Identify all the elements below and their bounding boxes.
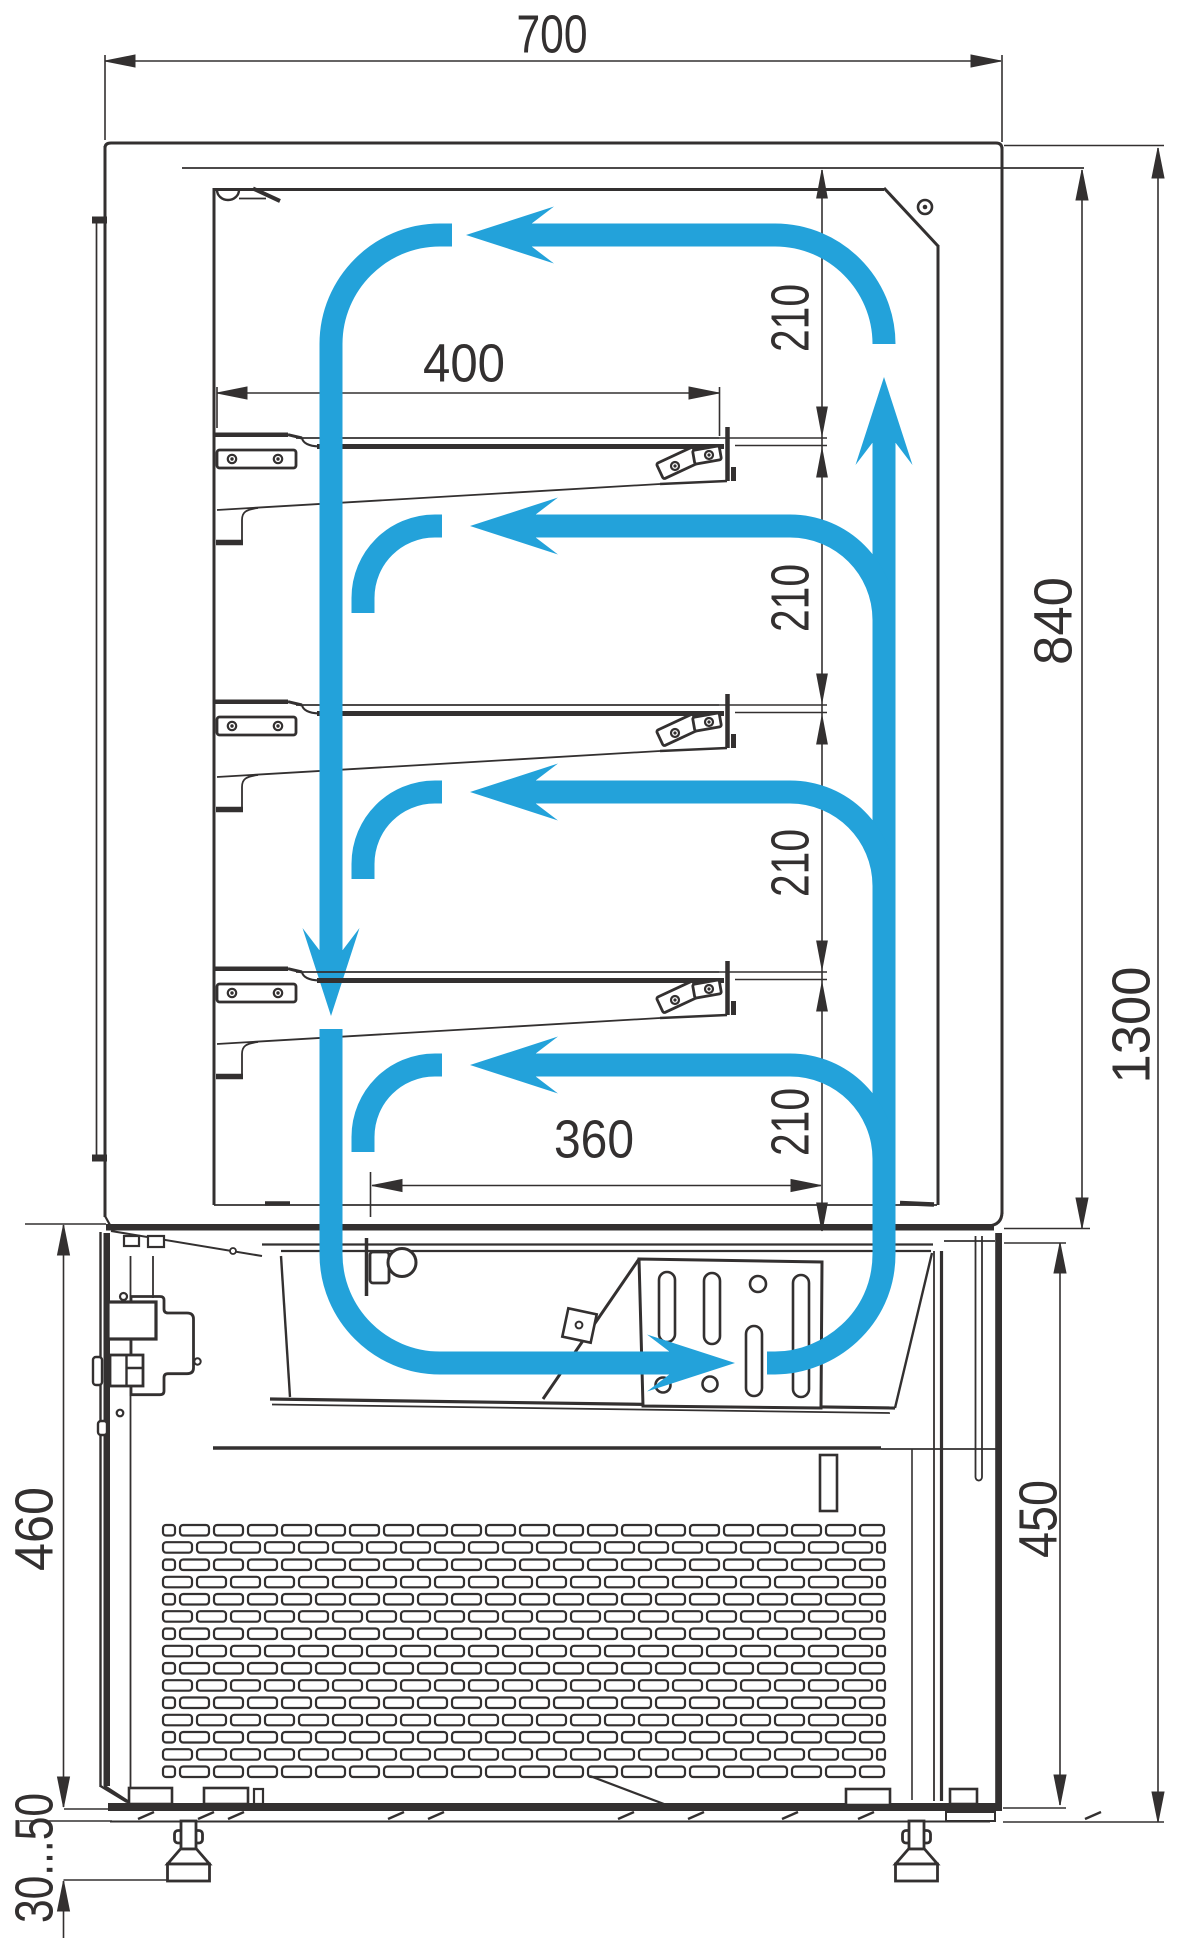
svg-text:360: 360 [554,1109,634,1169]
svg-text:1300: 1300 [1101,967,1161,1084]
svg-text:450: 450 [1008,1480,1068,1558]
svg-text:210: 210 [760,829,820,897]
svg-text:210: 210 [760,564,820,632]
svg-text:400: 400 [423,333,505,393]
svg-text:210: 210 [760,1088,820,1156]
svg-text:30...50: 30...50 [4,1793,64,1923]
svg-text:460: 460 [4,1487,64,1571]
svg-text:700: 700 [517,4,588,64]
svg-text:210: 210 [760,284,820,352]
svg-text:840: 840 [1023,577,1083,665]
